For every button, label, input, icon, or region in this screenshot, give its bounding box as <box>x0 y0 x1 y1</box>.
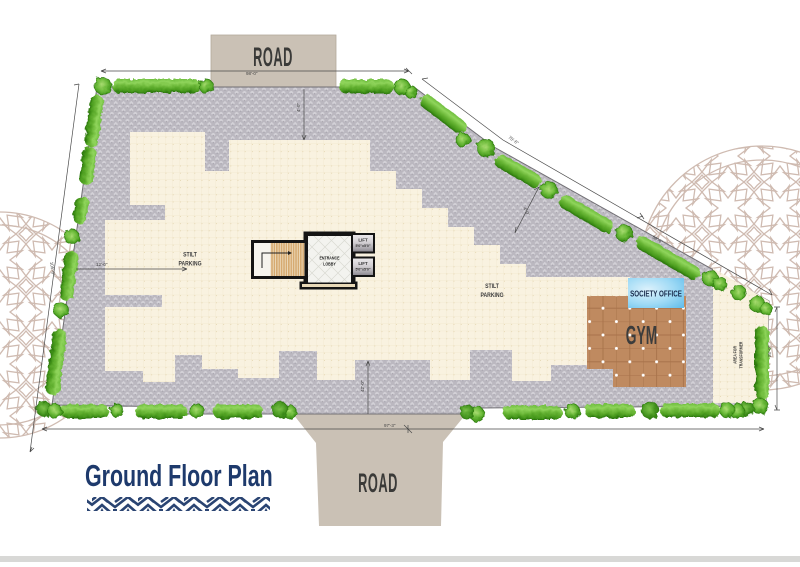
svg-text:STILT: STILT <box>485 283 499 290</box>
svg-text:5'0"x5'0": 5'0"x5'0" <box>355 268 370 272</box>
svg-text:LIFT: LIFT <box>358 261 368 266</box>
svg-text:GYM: GYM <box>626 322 657 351</box>
svg-text:LOBBY: LOBBY <box>323 261 336 266</box>
svg-text:STILT: STILT <box>183 252 197 259</box>
svg-text:PARKING: PARKING <box>178 261 201 268</box>
svg-text:Ground Floor Plan: Ground Floor Plan <box>85 458 273 493</box>
svg-text:12'-0": 12'-0" <box>96 262 108 267</box>
svg-text:PARKING: PARKING <box>480 292 503 299</box>
svg-text:ENTRANCE: ENTRANCE <box>319 255 339 260</box>
svg-text:25'-0": 25'-0" <box>767 345 772 357</box>
svg-text:42'-0": 42'-0" <box>360 380 365 392</box>
svg-text:SOCIETY OFFICE: SOCIETY OFFICE <box>630 290 682 299</box>
svg-text:LIFT: LIFT <box>358 238 368 243</box>
svg-text:TRANSFORMER: TRANSFORMER <box>738 342 744 369</box>
svg-text:ROAD: ROAD <box>253 43 293 72</box>
svg-text:AREA FOR: AREA FOR <box>732 346 738 364</box>
svg-text:4'-0": 4'-0" <box>296 103 301 112</box>
svg-text:ROAD: ROAD <box>358 469 398 498</box>
svg-text:97'-3": 97'-3" <box>384 423 396 428</box>
svg-text:98'-0": 98'-0" <box>246 71 258 76</box>
svg-text:5'0"x5'0": 5'0"x5'0" <box>355 244 370 248</box>
